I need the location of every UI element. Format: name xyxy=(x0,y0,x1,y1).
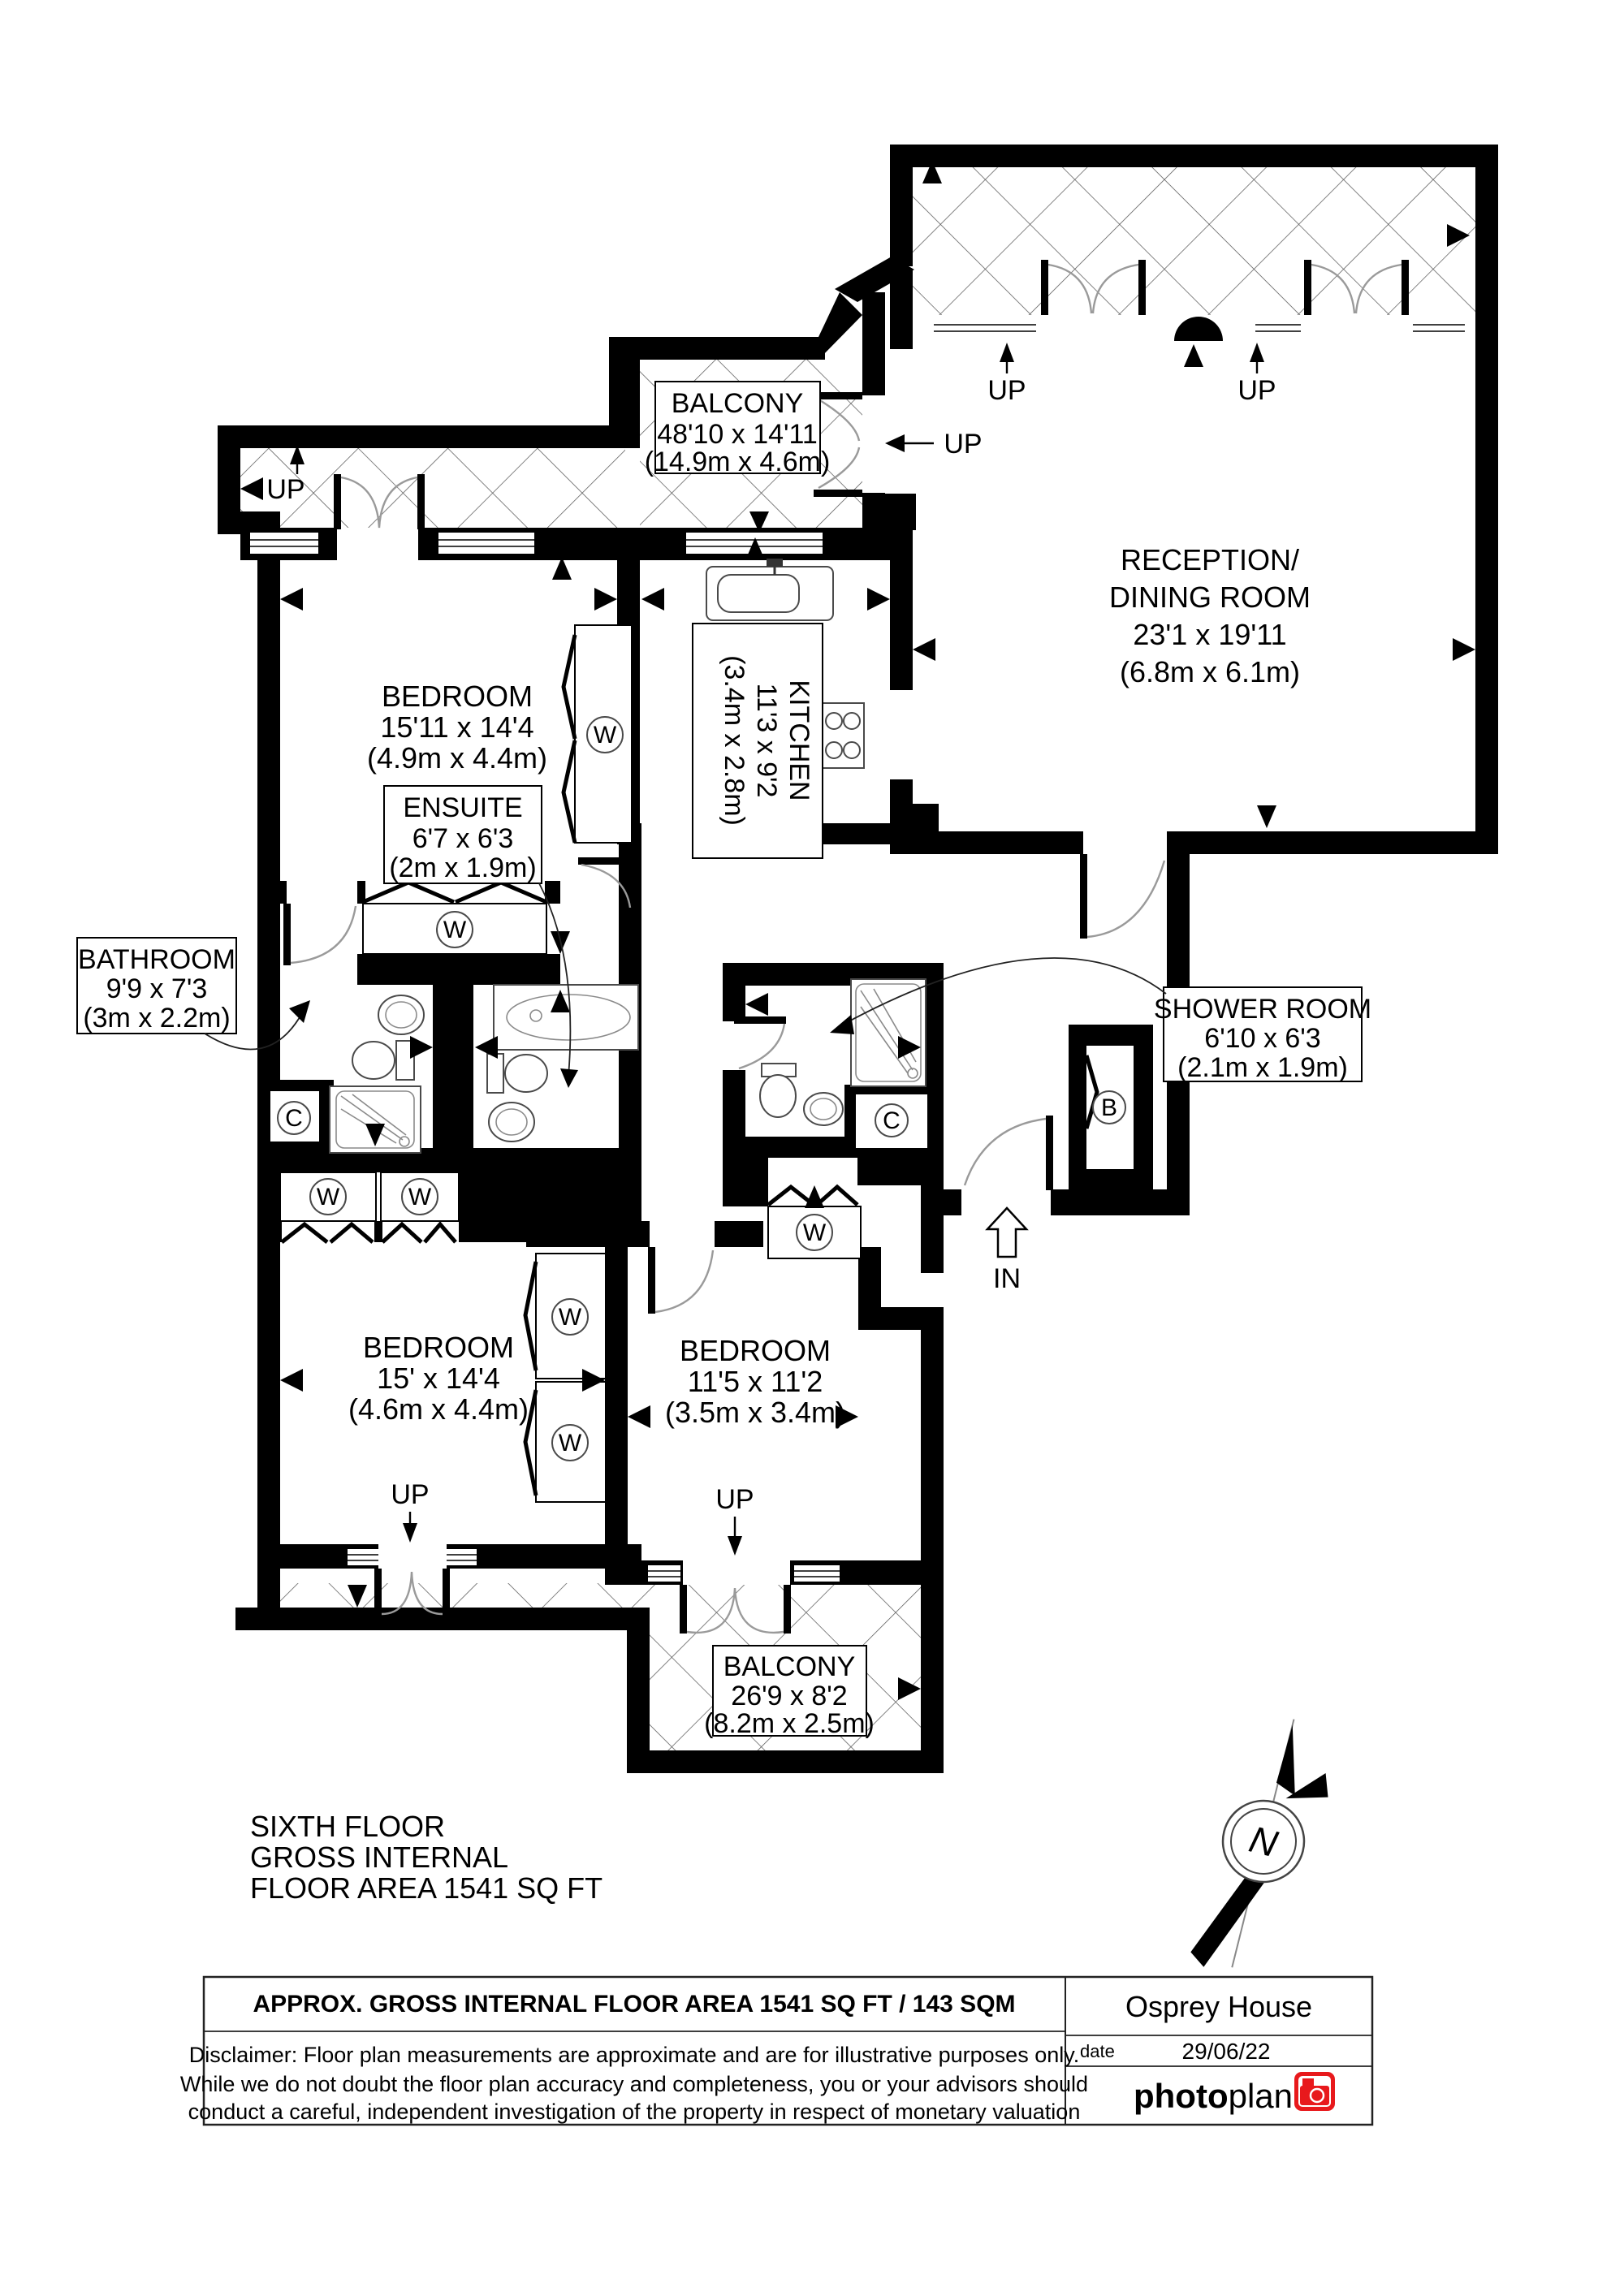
shower-room-sink xyxy=(804,1093,843,1125)
disclaimer-line: Disclaimer: Floor plan measurements are … xyxy=(189,2043,1079,2067)
svg-text:(14.9m x 4.6m): (14.9m x 4.6m) xyxy=(645,447,831,477)
window xyxy=(348,1549,378,1565)
photoplan-logo: photoplan xyxy=(1134,2072,1335,2115)
compass-icon: N xyxy=(1188,1709,1345,1987)
svg-text:(6.8m x 6.1m): (6.8m x 6.1m) xyxy=(1120,655,1300,688)
kitchen-hob xyxy=(822,703,864,768)
up-marker: UP xyxy=(715,1484,754,1556)
ensuite-toilet xyxy=(487,1054,547,1093)
cupboard: C xyxy=(270,1091,319,1142)
svg-text:(4.9m x 4.4m): (4.9m x 4.4m) xyxy=(367,741,547,775)
date-label: date xyxy=(1080,2041,1115,2061)
svg-text:BEDROOM: BEDROOM xyxy=(382,680,533,713)
entrance-door xyxy=(965,1116,1053,1190)
svg-text:15' x 14'4: 15' x 14'4 xyxy=(377,1362,500,1395)
svg-text:(4.6m x 4.4m): (4.6m x 4.4m) xyxy=(348,1392,529,1426)
boiler-cupboard: B xyxy=(1086,1046,1134,1169)
bathroom-toilet xyxy=(352,1041,414,1080)
room-label-kitchen: KITCHEN 11'3 x 9'2 (3.4m x 2.8m) xyxy=(693,624,823,858)
svg-text:(3.4m x 2.8m): (3.4m x 2.8m) xyxy=(719,655,749,826)
window xyxy=(648,1565,680,1582)
footer-title: APPROX. GROSS INTERNAL FLOOR AREA 1541 S… xyxy=(253,1991,1015,2018)
boiler-letter: B xyxy=(1101,1094,1117,1121)
svg-text:UP: UP xyxy=(944,429,982,460)
svg-text:9'9 x 7'3: 9'9 x 7'3 xyxy=(106,973,208,1004)
window xyxy=(934,318,1036,338)
wardrobe: W xyxy=(280,1172,376,1242)
svg-text:(2m x 1.9m): (2m x 1.9m) xyxy=(389,852,536,883)
window xyxy=(1255,318,1301,338)
date-value: 29/06/22 xyxy=(1182,2039,1271,2064)
svg-text:(3.5m x 3.4m): (3.5m x 3.4m) xyxy=(665,1396,845,1429)
bay-door-symbol xyxy=(1174,317,1223,341)
svg-text:RECEPTION/: RECEPTION/ xyxy=(1121,543,1299,576)
door xyxy=(1080,854,1164,939)
room-label-bedroom-3: BEDROOM 11'5 x 11'2 (3.5m x 3.4m) xyxy=(665,1334,845,1429)
svg-text:UP: UP xyxy=(715,1484,754,1515)
svg-text:(3m x 2.2m): (3m x 2.2m) xyxy=(83,1003,230,1034)
svg-text:GROSS INTERNAL: GROSS INTERNAL xyxy=(250,1841,508,1874)
up-marker: UP xyxy=(1237,343,1276,406)
wardrobe-letter: W xyxy=(559,1304,582,1331)
svg-text:UP: UP xyxy=(987,375,1026,406)
kitchen-sink xyxy=(706,559,833,620)
svg-text:(2.1m x 1.9m): (2.1m x 1.9m) xyxy=(1177,1052,1348,1083)
svg-text:11'5 x 11'2: 11'5 x 11'2 xyxy=(688,1365,823,1398)
footer: APPROX. GROSS INTERNAL FLOOR AREA 1541 S… xyxy=(180,1977,1372,2125)
cupboard: C xyxy=(856,1094,927,1148)
floor-info: SIXTH FLOOR GROSS INTERNAL FLOOR AREA 15… xyxy=(250,1810,603,1905)
entrance-in-marker: IN xyxy=(987,1208,1026,1294)
logo-text: photoplan xyxy=(1134,2077,1293,2115)
window xyxy=(250,533,318,554)
door xyxy=(648,1247,713,1314)
svg-text:15'11 x 14'4: 15'11 x 14'4 xyxy=(380,710,533,744)
wardrobe: W xyxy=(363,883,546,954)
wardrobe: W xyxy=(381,1172,459,1242)
floor-plan: W W W W W W W C C B xyxy=(0,0,1624,2296)
svg-text:DINING ROOM: DINING ROOM xyxy=(1109,580,1311,614)
svg-text:(8.2m x 2.5m): (8.2m x 2.5m) xyxy=(704,1708,875,1739)
window xyxy=(794,1565,840,1582)
camera-icon xyxy=(1294,2072,1335,2111)
room-label-bedroom-2: BEDROOM 15' x 14'4 (4.6m x 4.4m) xyxy=(348,1331,529,1426)
shower-room-toilet xyxy=(760,1064,796,1117)
svg-text:26'9 x 8'2: 26'9 x 8'2 xyxy=(731,1681,847,1711)
room-label-reception: RECEPTION/ DINING ROOM 23'1 x 19'11 (6.8… xyxy=(1109,543,1311,688)
door xyxy=(283,904,356,965)
wardrobe-letter: W xyxy=(594,722,617,749)
cupboard-letter: C xyxy=(285,1105,303,1132)
window xyxy=(446,1549,477,1565)
wardrobe: W xyxy=(564,625,632,843)
property-name: Osprey House xyxy=(1125,1990,1312,2023)
wardrobe-letter: W xyxy=(443,917,467,943)
bathroom-sink xyxy=(378,995,424,1034)
svg-text:48'10 x 14'11: 48'10 x 14'11 xyxy=(657,419,818,450)
svg-text:FLOOR AREA 1541 SQ FT: FLOOR AREA 1541 SQ FT xyxy=(250,1871,603,1905)
svg-text:UP: UP xyxy=(266,474,304,505)
room-label-bedroom-1: BEDROOM 15'11 x 14'4 (4.9m x 4.4m) xyxy=(367,680,547,775)
wardrobe-letter: W xyxy=(408,1184,432,1211)
svg-text:6'7 x 6'3: 6'7 x 6'3 xyxy=(412,823,514,854)
ensuite-sink xyxy=(489,1103,534,1142)
svg-text:BEDROOM: BEDROOM xyxy=(363,1331,514,1364)
wardrobe-letter: W xyxy=(559,1430,582,1457)
svg-text:SHOWER ROOM: SHOWER ROOM xyxy=(1154,994,1371,1025)
room-label-balcony-bottom: BALCONY 26'9 x 8'2 (8.2m x 2.5m) xyxy=(704,1646,875,1739)
svg-text:BATHROOM: BATHROOM xyxy=(78,944,235,975)
svg-text:KITCHEN: KITCHEN xyxy=(784,680,814,801)
svg-text:6'10 x 6'3: 6'10 x 6'3 xyxy=(1204,1023,1320,1054)
svg-text:SIXTH FLOOR: SIXTH FLOOR xyxy=(250,1810,445,1843)
svg-text:11'3 x 9'2: 11'3 x 9'2 xyxy=(751,684,782,798)
wardrobe-letter: W xyxy=(803,1219,827,1246)
ensuite-bathtub xyxy=(494,985,638,1050)
svg-text:UP: UP xyxy=(1237,375,1276,406)
wardrobe-letter: W xyxy=(317,1184,340,1211)
svg-text:23'1 x 19'11: 23'1 x 19'11 xyxy=(1133,618,1286,651)
disclaimer-line: While we do not doubt the floor plan acc… xyxy=(180,2072,1088,2096)
shower-room-shower xyxy=(851,979,926,1086)
disclaimer-line: conduct a careful, independent investiga… xyxy=(188,2100,1081,2124)
svg-text:ENSUITE: ENSUITE xyxy=(403,792,522,823)
window xyxy=(438,533,534,554)
up-marker: UP xyxy=(391,1479,429,1543)
svg-text:BALCONY: BALCONY xyxy=(723,1651,856,1682)
up-marker: UP xyxy=(987,343,1026,406)
svg-text:BEDROOM: BEDROOM xyxy=(680,1334,831,1367)
door xyxy=(734,1016,786,1068)
svg-text:UP: UP xyxy=(391,1479,429,1510)
cupboard-letter: C xyxy=(883,1107,901,1134)
svg-text:IN: IN xyxy=(993,1263,1021,1294)
window xyxy=(1413,318,1465,338)
up-marker: UP xyxy=(885,429,983,460)
wardrobe: W xyxy=(525,1382,606,1502)
wardrobe: W xyxy=(525,1254,606,1379)
svg-text:BALCONY: BALCONY xyxy=(672,388,804,419)
room-label-balcony-top: BALCONY 48'10 x 14'11 (14.9m x 4.6m) xyxy=(645,382,831,477)
